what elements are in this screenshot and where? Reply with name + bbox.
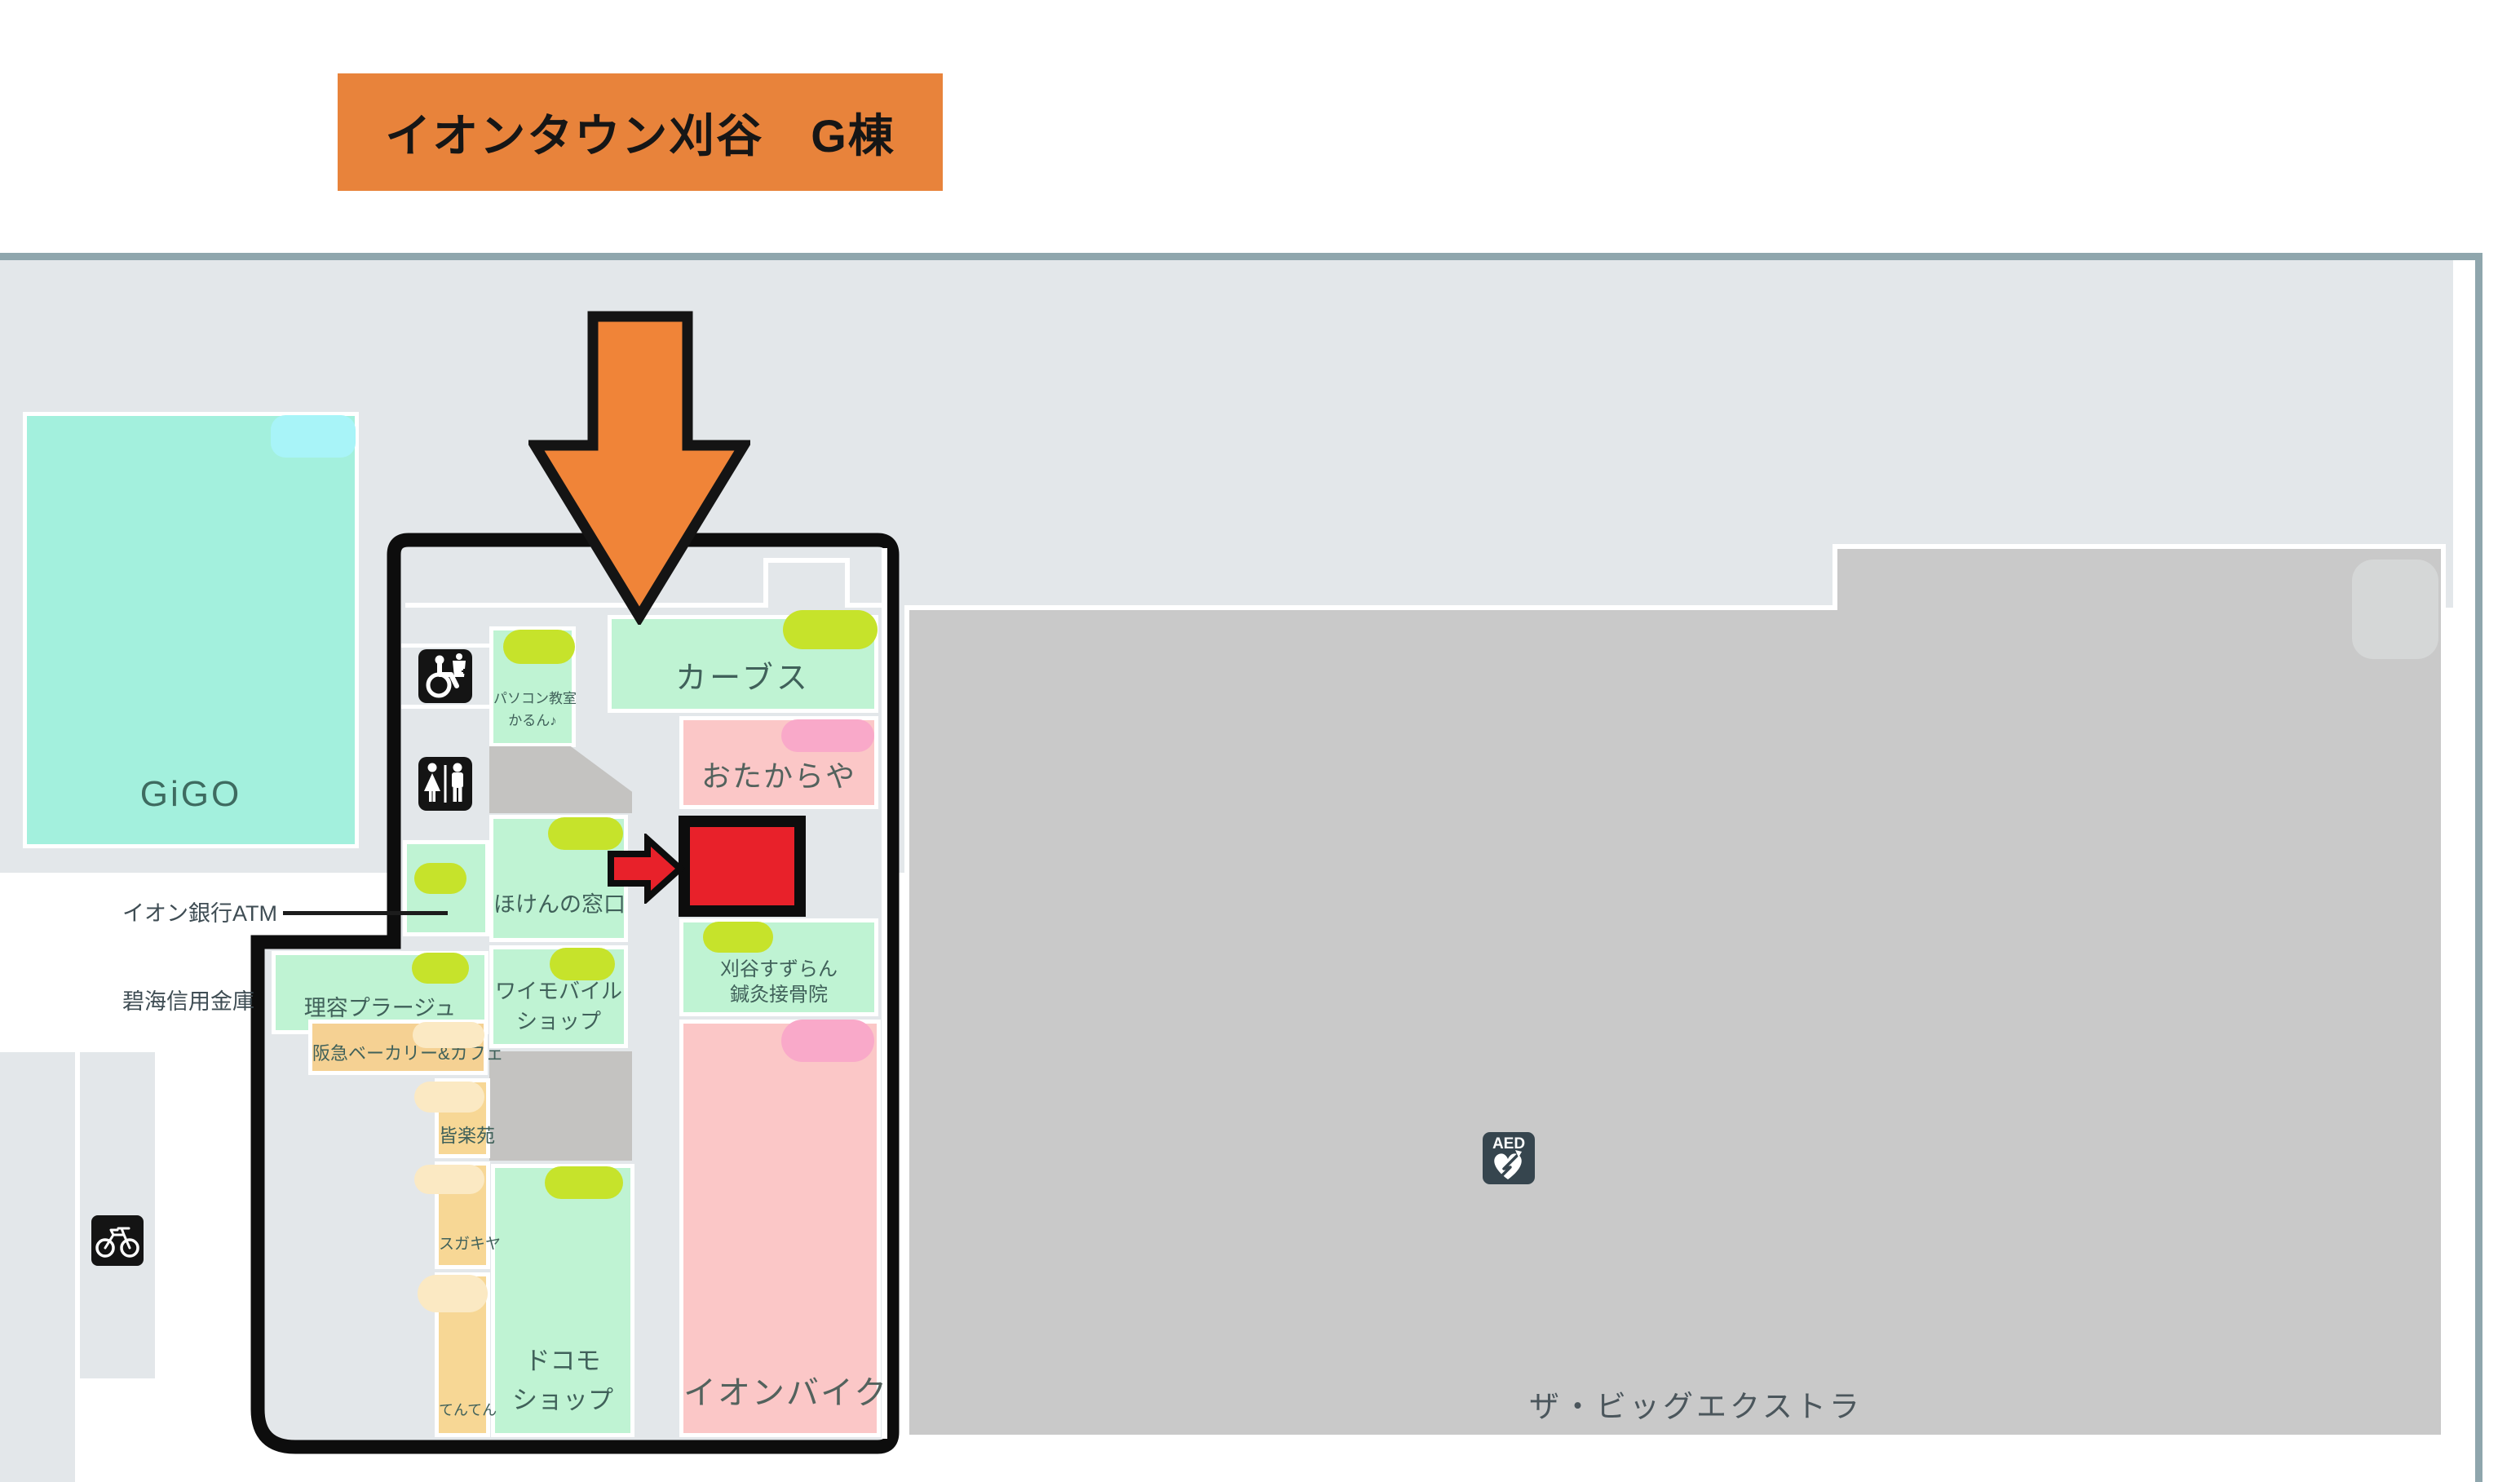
entrance-pill xyxy=(503,630,575,664)
entrance-pill xyxy=(781,719,874,752)
entrance-pill xyxy=(703,922,773,953)
accessible-restroom-icon xyxy=(418,649,472,703)
store-docomo-label: ドコモ ショップ xyxy=(495,1342,630,1420)
store-minrakuen-label: 皆楽苑 xyxy=(439,1120,486,1148)
backyard-lower xyxy=(489,1051,632,1161)
entrance-pill xyxy=(414,1165,484,1194)
big-extra-corner-tab xyxy=(2352,560,2438,659)
store-pasokon-label: パソコン教室 かるん♪ xyxy=(493,688,572,732)
floor-map-page: イオンタウン刈谷 G棟 GiGO パソコン教室 かるん♪ ほけんの窓口 ワイモバ… xyxy=(0,0,2520,1482)
corridor-divider-line xyxy=(882,548,887,1439)
store-rihyo-label: 理容プラージュ xyxy=(276,990,484,1022)
corridor-notch-top xyxy=(763,558,850,563)
restroom-icon xyxy=(418,757,472,811)
entrance-pill xyxy=(413,1022,484,1048)
store-ymobile-label: ワイモバイル ショップ xyxy=(493,976,624,1037)
store-ionbike-label: イオンバイク xyxy=(683,1366,877,1413)
label-aeon-bank-atm: イオン銀行ATM xyxy=(122,896,277,927)
bicycle-parking-icon xyxy=(91,1215,144,1266)
aed-icon: AED xyxy=(1483,1132,1535,1184)
highlighted-unit xyxy=(679,816,806,917)
entrance-pill xyxy=(414,863,466,894)
corridor-divider-line xyxy=(401,705,489,709)
store-tenten-label: てんてん xyxy=(439,1399,486,1420)
entrance-pill xyxy=(412,953,469,984)
big-extra-block xyxy=(907,546,2443,1437)
entrance-pill xyxy=(550,948,615,980)
entrance-pill xyxy=(783,610,878,649)
building-outlines xyxy=(0,0,2520,1482)
corridor-divider-line xyxy=(401,644,489,648)
store-otakaraya-label: おたからや xyxy=(683,753,874,795)
atm-pointer-line xyxy=(283,911,448,915)
aed-icon-label: AED xyxy=(1492,1135,1525,1152)
store-docomo: ドコモ ショップ xyxy=(491,1164,634,1437)
entrance-pill xyxy=(545,1166,623,1199)
red-arrow-icon xyxy=(607,834,685,904)
store-sugakiya-label: スガキヤ xyxy=(439,1232,486,1254)
store-hoken-label: ほけんの窓口 xyxy=(493,887,624,918)
store-suzuran-label: 刈谷すずらん 鍼灸接骨院 xyxy=(683,957,874,1007)
label-big-extra: ザ・ビッグエクストラ xyxy=(1529,1382,1863,1426)
corridor-notch-left xyxy=(763,558,768,608)
entrance-pill xyxy=(781,1020,874,1062)
entrance-pill xyxy=(418,1275,488,1312)
building-locator-arrow xyxy=(528,308,750,625)
store-ionbike: イオンバイク xyxy=(679,1020,881,1437)
store-carbs-label: カーブス xyxy=(612,653,874,697)
corridor-notch-right xyxy=(845,558,850,608)
label-hekikai-shinkin: 碧海信用金庫 xyxy=(122,984,254,1015)
entrance-pill xyxy=(414,1082,484,1113)
